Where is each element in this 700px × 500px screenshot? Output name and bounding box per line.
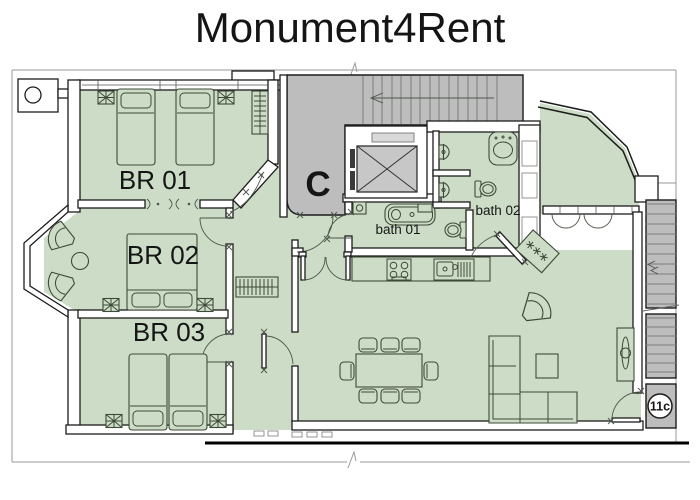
bath01-label: bath 01	[375, 222, 420, 237]
page-title: Monument4Rent	[195, 4, 506, 51]
chimney	[18, 79, 70, 112]
chair-icon	[381, 389, 399, 403]
single-bed-icon	[169, 354, 207, 430]
unit-badge: 11c	[648, 394, 672, 418]
unit-label: 11c	[650, 400, 670, 414]
wardrobe-icon	[252, 91, 268, 134]
hall-wardrobe-icon	[236, 277, 278, 297]
sink-icon	[439, 145, 449, 160]
dining-table-icon	[356, 354, 422, 387]
floorplan-page: Monument4Rent	[0, 0, 700, 500]
radiator-icon	[218, 91, 234, 104]
chair-icon	[359, 389, 377, 403]
coffee-table-icon	[536, 354, 558, 378]
balcony-door-arcs	[552, 214, 612, 228]
toilet-icon	[445, 222, 466, 238]
radiator-icon	[210, 415, 226, 428]
radiator-icon	[98, 91, 114, 104]
chair-icon	[340, 362, 354, 380]
bath02-label: bath 02	[475, 203, 520, 218]
chair-icon	[402, 338, 420, 352]
kitchen	[352, 257, 490, 281]
washing-machine-icon	[353, 202, 366, 214]
kitchen-counter	[352, 257, 490, 281]
sink-icon	[439, 183, 449, 198]
chair-icon	[359, 338, 377, 352]
console-icon	[617, 328, 634, 381]
single-bed-icon	[117, 89, 155, 165]
radiator-icon	[103, 299, 119, 312]
radiator-niche	[522, 173, 537, 198]
radiator-niche	[522, 141, 537, 166]
elevator-icon	[345, 126, 427, 198]
stairwell-label: C	[305, 165, 330, 204]
shelf-icon	[418, 204, 432, 212]
floorplan-image: Monument4Rent	[0, 0, 700, 500]
br01-label: BR 01	[119, 165, 191, 195]
chair-icon	[402, 389, 420, 403]
chair-icon	[381, 338, 399, 352]
radiator-icon	[197, 299, 213, 312]
radiator-icon	[106, 415, 122, 428]
side-table-icon	[72, 253, 89, 270]
bathtub-icon	[489, 132, 517, 165]
break-mark-icon	[348, 452, 356, 468]
toilet-icon	[475, 181, 496, 197]
column-icon	[25, 87, 41, 103]
single-bed-icon	[129, 354, 167, 430]
br02-label: BR 02	[127, 240, 199, 270]
vent-boxes	[254, 431, 332, 437]
single-bed-icon	[176, 89, 214, 165]
br03-label: BR 03	[133, 317, 205, 347]
chair-icon	[424, 362, 438, 380]
